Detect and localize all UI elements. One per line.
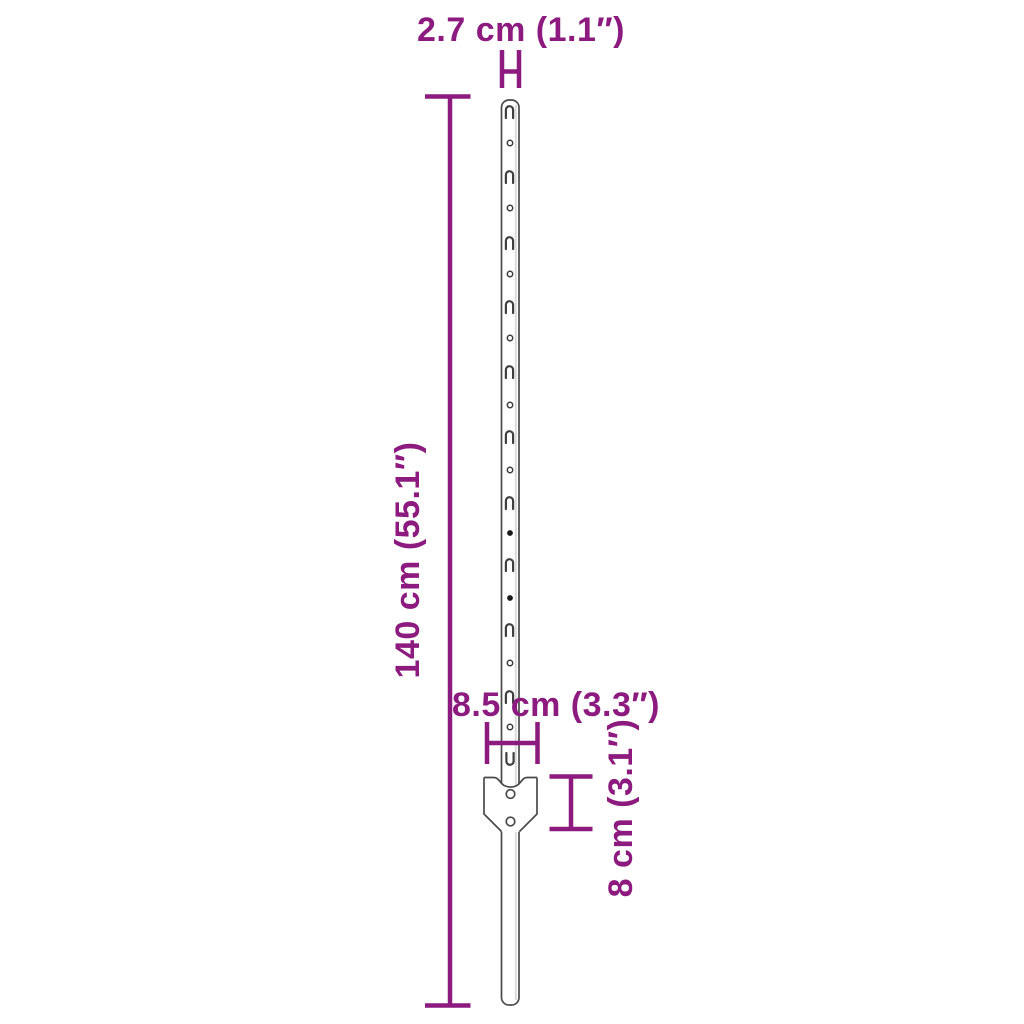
mounting-hole-icon [507, 140, 512, 145]
mounting-hole-icon [507, 724, 512, 729]
label-post-height: 140 cm (55.1″) [389, 442, 427, 679]
post-body [502, 100, 520, 1005]
mounting-hole-icon [507, 467, 512, 472]
mounting-hole-icon [507, 205, 512, 210]
mounting-hole-icon [507, 402, 512, 407]
dimension-post-height [425, 97, 471, 1006]
diagram-canvas: 2.7 cm (1.1″) 140 cm (55.1″) 8.5 cm (3.3… [0, 0, 1024, 1024]
mounting-hole-icon [507, 335, 512, 340]
plate-hole-icon [506, 790, 515, 799]
dimension-plate-height [550, 777, 593, 830]
rivet-dot-icon [507, 595, 513, 601]
rivet-dot-icon [507, 530, 513, 536]
plate-hole-icon [506, 817, 515, 826]
label-plate-height: 8 cm (3.1″) [602, 719, 640, 898]
mounting-hole-icon [507, 660, 512, 665]
label-plate-width: 8.5 cm (3.3″) [452, 686, 660, 724]
fence-post-diagram: 2.7 cm (1.1″) 140 cm (55.1″) 8.5 cm (3.3… [0, 0, 1024, 1024]
dimension-post-width [500, 50, 521, 88]
mounting-hole-icon [507, 271, 512, 276]
label-post-width: 2.7 cm (1.1″) [417, 11, 625, 49]
